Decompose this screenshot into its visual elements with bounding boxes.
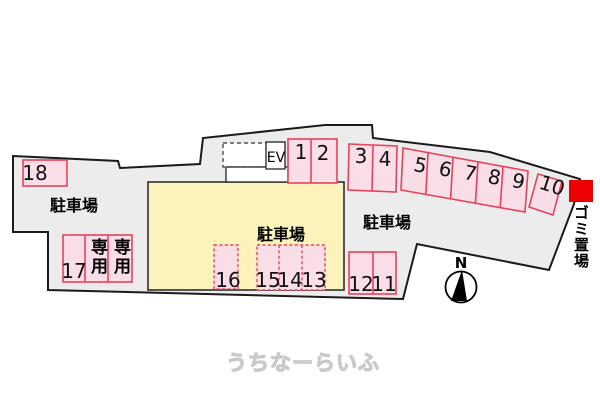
parking-group-3-4: 3 4 (348, 144, 397, 192)
space-number-11: 11 (371, 272, 396, 296)
space-number-1: 1 (295, 140, 308, 164)
parking-group-12-11: 12 11 (348, 252, 396, 296)
space-number-2: 2 (317, 141, 330, 165)
space-number-17: 17 (61, 259, 86, 283)
reserved-space-label: 専用 (88, 238, 105, 276)
space-number-18: 18 (22, 161, 47, 185)
parking-area-label-left: 駐車場 (50, 196, 98, 215)
space-divider (372, 145, 373, 191)
compass: N (446, 254, 477, 303)
site-plan-image: EV 18 1 2 3 4 5 6 7 8 9 (0, 0, 600, 400)
space-number-13: 13 (301, 268, 326, 292)
garbage-bin-marker (569, 180, 593, 202)
site-plan-svg: EV 18 1 2 3 4 5 6 7 8 9 (0, 0, 600, 400)
watermark-logo: うちなーらいふ (226, 351, 380, 375)
parking-area-label-center: 駐車場 (257, 225, 305, 244)
elevator-label: EV (267, 150, 286, 166)
space-number-16: 16 (215, 268, 240, 292)
garbage-area-label: ゴミ置場 (573, 205, 588, 269)
parking-group-15-13: 15 14 13 (255, 245, 326, 292)
space-number-3: 3 (355, 144, 368, 168)
north-label: N (455, 254, 468, 272)
space-number-4: 4 (379, 147, 392, 171)
reserved-space-label: 専用 (111, 238, 128, 276)
entrance-dashed-box (223, 143, 268, 167)
parking-area-label-right: 駐車場 (363, 213, 411, 232)
parking-group-1-2: 1 2 (288, 139, 337, 183)
space-number-14: 14 (277, 268, 302, 292)
space-number-12: 12 (348, 272, 373, 296)
